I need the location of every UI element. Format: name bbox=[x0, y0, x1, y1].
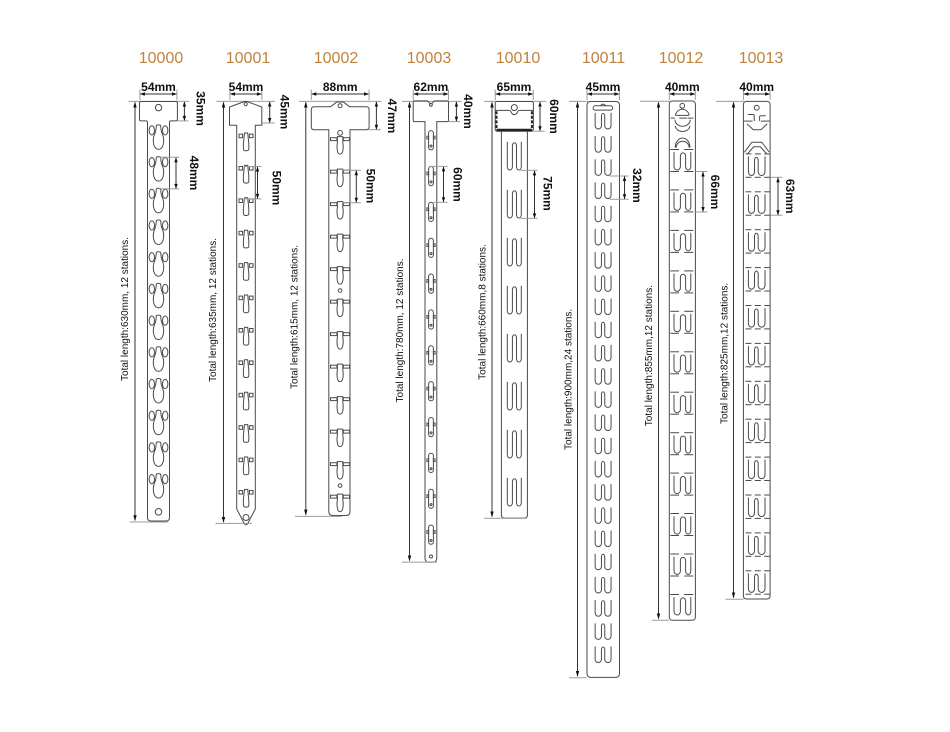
svg-text:50mm: 50mm bbox=[270, 171, 284, 206]
svg-text:62mm: 62mm bbox=[414, 80, 449, 94]
svg-text:Total length:630mm, 12 station: Total length:630mm, 12 stations. bbox=[120, 237, 131, 381]
svg-text:10001: 10001 bbox=[226, 50, 271, 67]
svg-text:Total length:825mm,12 stations: Total length:825mm,12 stations. bbox=[720, 283, 731, 424]
svg-text:10010: 10010 bbox=[496, 50, 541, 67]
svg-text:35mm: 35mm bbox=[194, 91, 208, 126]
svg-text:63mm: 63mm bbox=[783, 179, 797, 214]
svg-text:40mm: 40mm bbox=[461, 94, 475, 129]
svg-text:10002: 10002 bbox=[314, 50, 359, 67]
svg-text:65mm: 65mm bbox=[497, 80, 532, 94]
svg-text:Total length:660mm,8 stations.: Total length:660mm,8 stations. bbox=[478, 244, 489, 380]
svg-text:Total length:635mm, 12 station: Total length:635mm, 12 stations. bbox=[208, 238, 219, 382]
svg-text:Total length:780mm, 12 station: Total length:780mm, 12 stations. bbox=[395, 259, 406, 403]
svg-text:45mm: 45mm bbox=[278, 95, 292, 130]
svg-text:60mm: 60mm bbox=[450, 167, 464, 202]
svg-text:88mm: 88mm bbox=[323, 80, 358, 94]
svg-text:45mm: 45mm bbox=[586, 80, 621, 94]
svg-text:Total length:900mm,24 stations: Total length:900mm,24 stations. bbox=[564, 309, 575, 450]
svg-text:54mm: 54mm bbox=[141, 80, 176, 94]
svg-text:40mm: 40mm bbox=[665, 80, 700, 94]
svg-text:75mm: 75mm bbox=[541, 176, 555, 211]
svg-text:10003: 10003 bbox=[407, 50, 452, 67]
svg-text:54mm: 54mm bbox=[229, 80, 264, 94]
svg-text:32mm: 32mm bbox=[630, 168, 644, 203]
svg-text:10000: 10000 bbox=[139, 50, 184, 67]
svg-text:10013: 10013 bbox=[739, 50, 784, 67]
svg-text:40mm: 40mm bbox=[739, 80, 774, 94]
svg-text:60mm: 60mm bbox=[547, 99, 561, 134]
svg-text:48mm: 48mm bbox=[187, 156, 201, 191]
svg-text:Total length:855mm,12 stations: Total length:855mm,12 stations. bbox=[644, 285, 655, 426]
svg-text:47mm: 47mm bbox=[385, 99, 399, 134]
svg-text:Total length:615mm, 12 station: Total length:615mm, 12 stations. bbox=[290, 245, 301, 389]
svg-text:50mm: 50mm bbox=[364, 169, 378, 204]
svg-text:66mm: 66mm bbox=[708, 175, 722, 210]
svg-text:10012: 10012 bbox=[659, 50, 704, 67]
svg-text:10011: 10011 bbox=[582, 50, 625, 67]
